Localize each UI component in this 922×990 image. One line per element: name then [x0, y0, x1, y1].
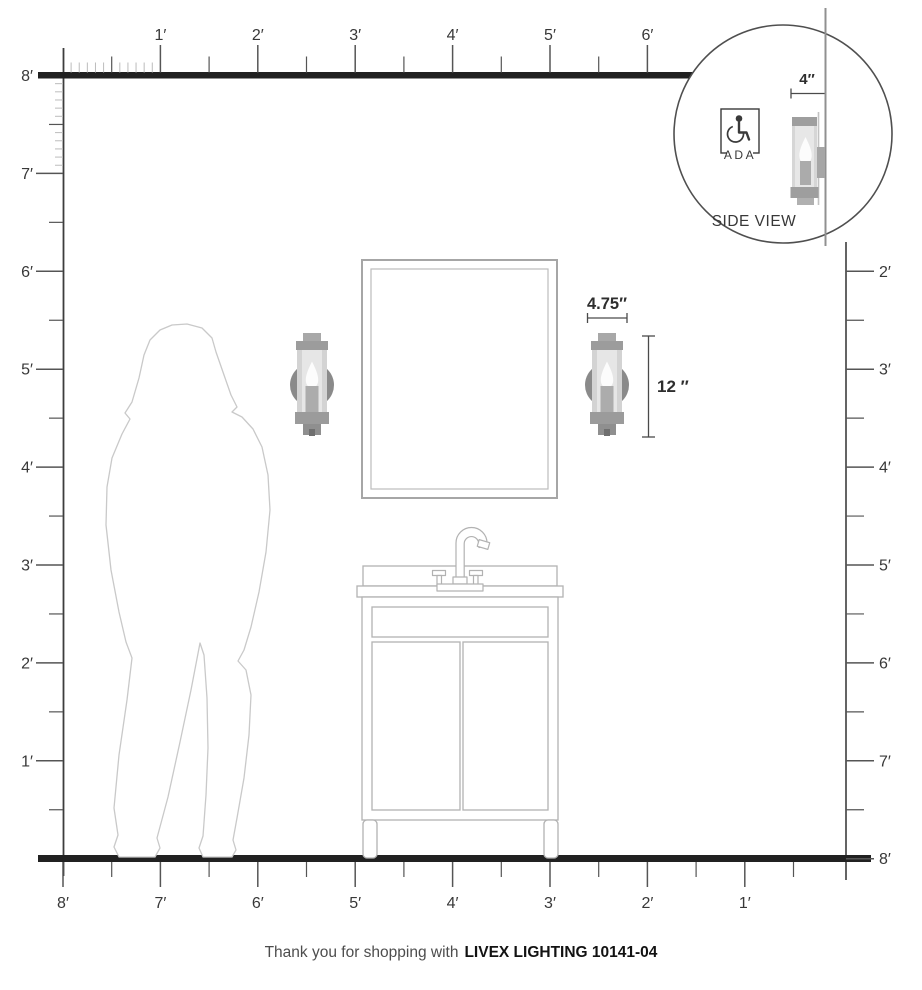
ruler-label: 3′: [21, 558, 33, 575]
ruler-label: 6′: [21, 264, 33, 281]
ruler-label: 6′: [252, 895, 264, 912]
vanity-door-left: [372, 642, 460, 810]
floor-line: [38, 855, 871, 862]
faucet-base: [453, 577, 467, 584]
sconce-side-finial: [797, 198, 814, 205]
side-view-inset: ADA 4″ SIDE VIEW: [674, 8, 892, 246]
vanity-leg-left: [363, 820, 377, 858]
faucet-deck-plate: [437, 584, 483, 591]
sconce-side-top-band: [792, 117, 817, 126]
ruler-label: 2′: [879, 264, 891, 281]
footer-text: Thank you for shopping withLIVEX LIGHTIN…: [0, 944, 922, 962]
inset-circle: [674, 25, 892, 243]
sconce-width-dimension: [588, 313, 628, 323]
mirror: [362, 260, 557, 498]
scale-diagram-svg: 1′2′3′4′5′6′8′7′6′5′4′3′2′1′2′3′4′5′6′7′…: [0, 0, 922, 990]
ada-badge: ADA: [721, 109, 759, 162]
ruler-label: 4′: [447, 27, 459, 44]
ruler-label: 3′: [879, 362, 891, 379]
wall-sconce-left: [290, 333, 334, 436]
ruler-label: 5′: [544, 27, 556, 44]
faucet-handle-left: [433, 571, 446, 576]
wall-sconce-right: [585, 333, 629, 436]
inset-caption: SIDE VIEW: [712, 213, 797, 230]
ruler-label: 5′: [349, 895, 361, 912]
ruler-label: 1′: [21, 753, 33, 770]
ruler-label: 2′: [641, 895, 653, 912]
ruler-label: 4′: [447, 895, 459, 912]
ruler-label: 5′: [879, 558, 891, 575]
ruler-label: 7′: [879, 753, 891, 770]
scale-diagram-page: 1′2′3′4′5′6′8′7′6′5′4′3′2′1′2′3′4′5′6′7′…: [0, 0, 922, 990]
vanity-cabinet: [357, 566, 563, 858]
mirror-outer-frame: [362, 260, 557, 498]
ruler-label: 3′: [349, 27, 361, 44]
ruler-label: 4′: [21, 460, 33, 477]
ruler-label: 6′: [641, 27, 653, 44]
ruler-label: 4′: [879, 460, 891, 477]
faucet-handle-right: [470, 571, 483, 576]
inset-depth-label: 4″: [799, 71, 815, 88]
person-silhouette: [106, 324, 270, 857]
ruler-label: 7′: [21, 166, 33, 183]
ada-label: ADA: [724, 148, 756, 162]
ruler-label: 6′: [879, 655, 891, 672]
ruler-label: 1′: [739, 895, 751, 912]
ruler-label: 8′: [21, 68, 33, 85]
footer-prefix: Thank you for shopping with: [265, 944, 459, 961]
ruler-label: 8′: [879, 851, 891, 868]
ruler-label: 1′: [154, 27, 166, 44]
vanity-drawer: [372, 607, 548, 637]
candle-body: [800, 161, 811, 185]
sconce-width-label: 4.75″: [587, 295, 627, 313]
ruler-label: 2′: [252, 27, 264, 44]
ruler-label: 3′: [544, 895, 556, 912]
vanity-door-right: [463, 642, 548, 810]
ruler-label: 5′: [21, 362, 33, 379]
sconce-height-label: 12 ″: [657, 377, 689, 396]
vanity-leg-right: [544, 820, 558, 858]
sconce-side-bottom-band: [791, 187, 819, 198]
ruler-label: 8′: [57, 895, 69, 912]
sconce-height-dimension: [642, 336, 655, 437]
footer-brand: LIVEX LIGHTING 10141-04: [464, 944, 657, 961]
ruler-label: 2′: [21, 655, 33, 672]
ruler-label: 7′: [154, 895, 166, 912]
